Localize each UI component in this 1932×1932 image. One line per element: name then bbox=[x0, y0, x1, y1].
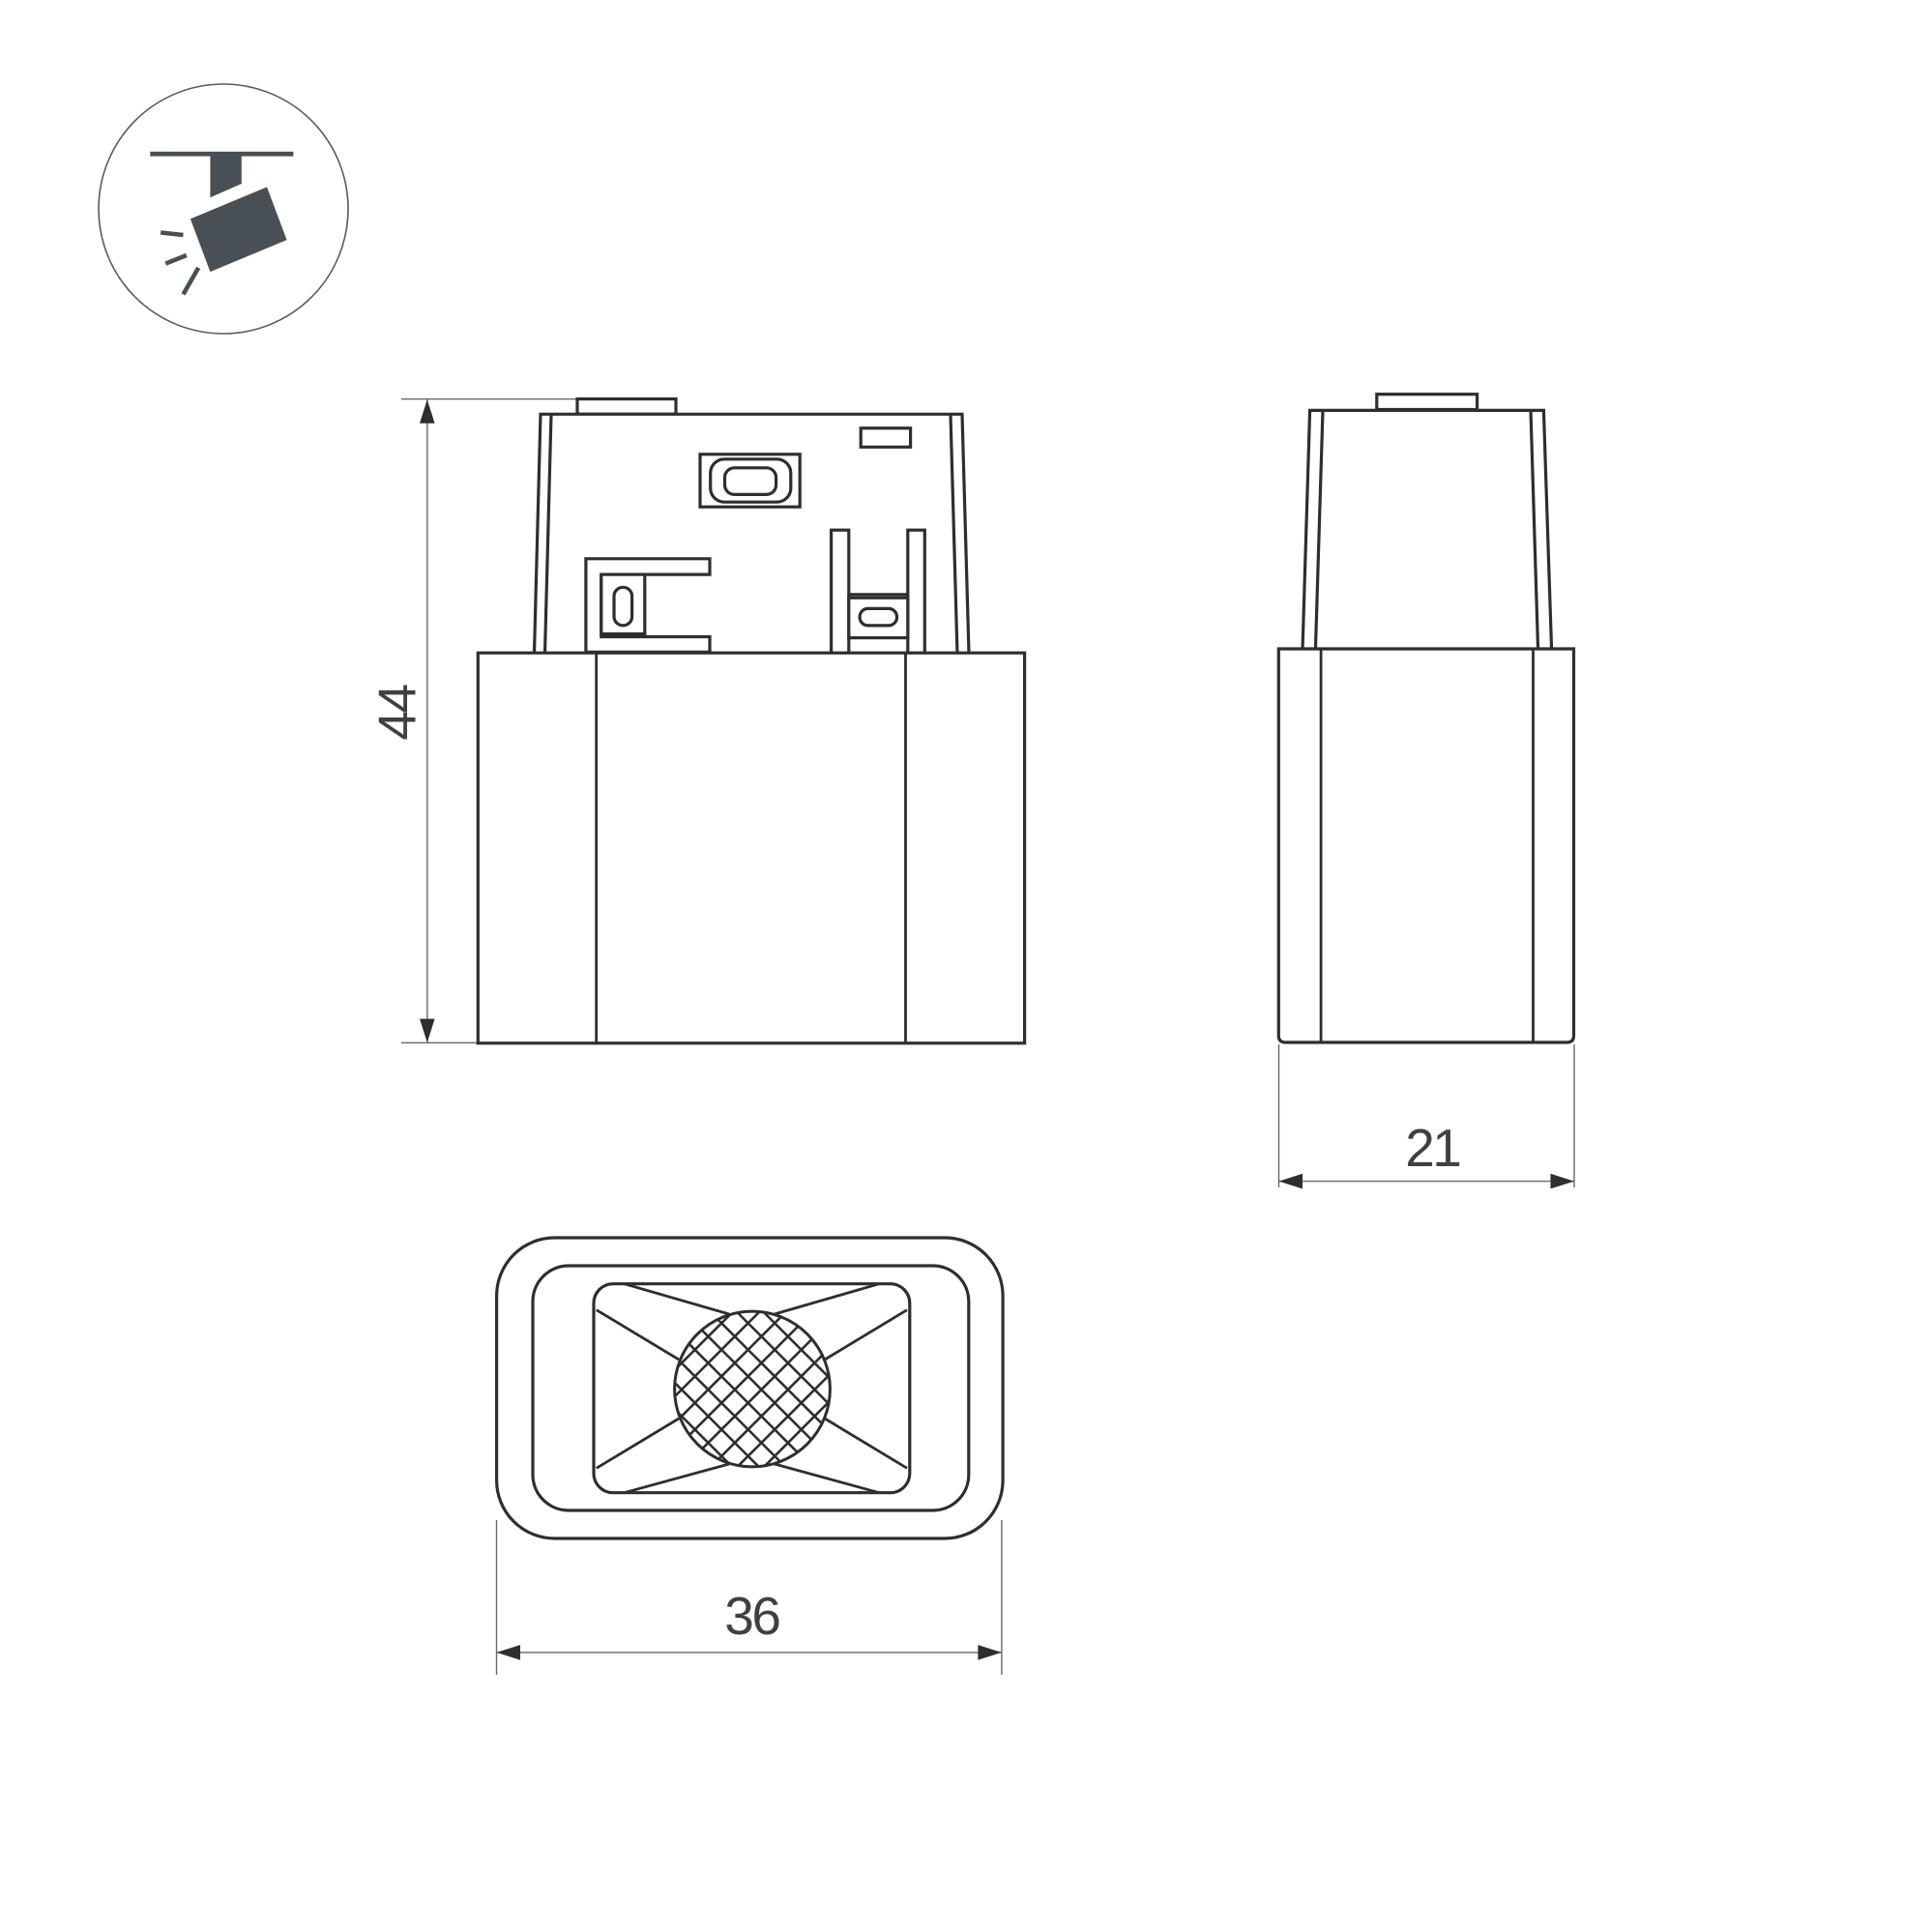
svg-text:44: 44 bbox=[367, 686, 427, 741]
svg-text:21: 21 bbox=[1405, 1118, 1459, 1178]
svg-text:36: 36 bbox=[724, 1586, 779, 1646]
